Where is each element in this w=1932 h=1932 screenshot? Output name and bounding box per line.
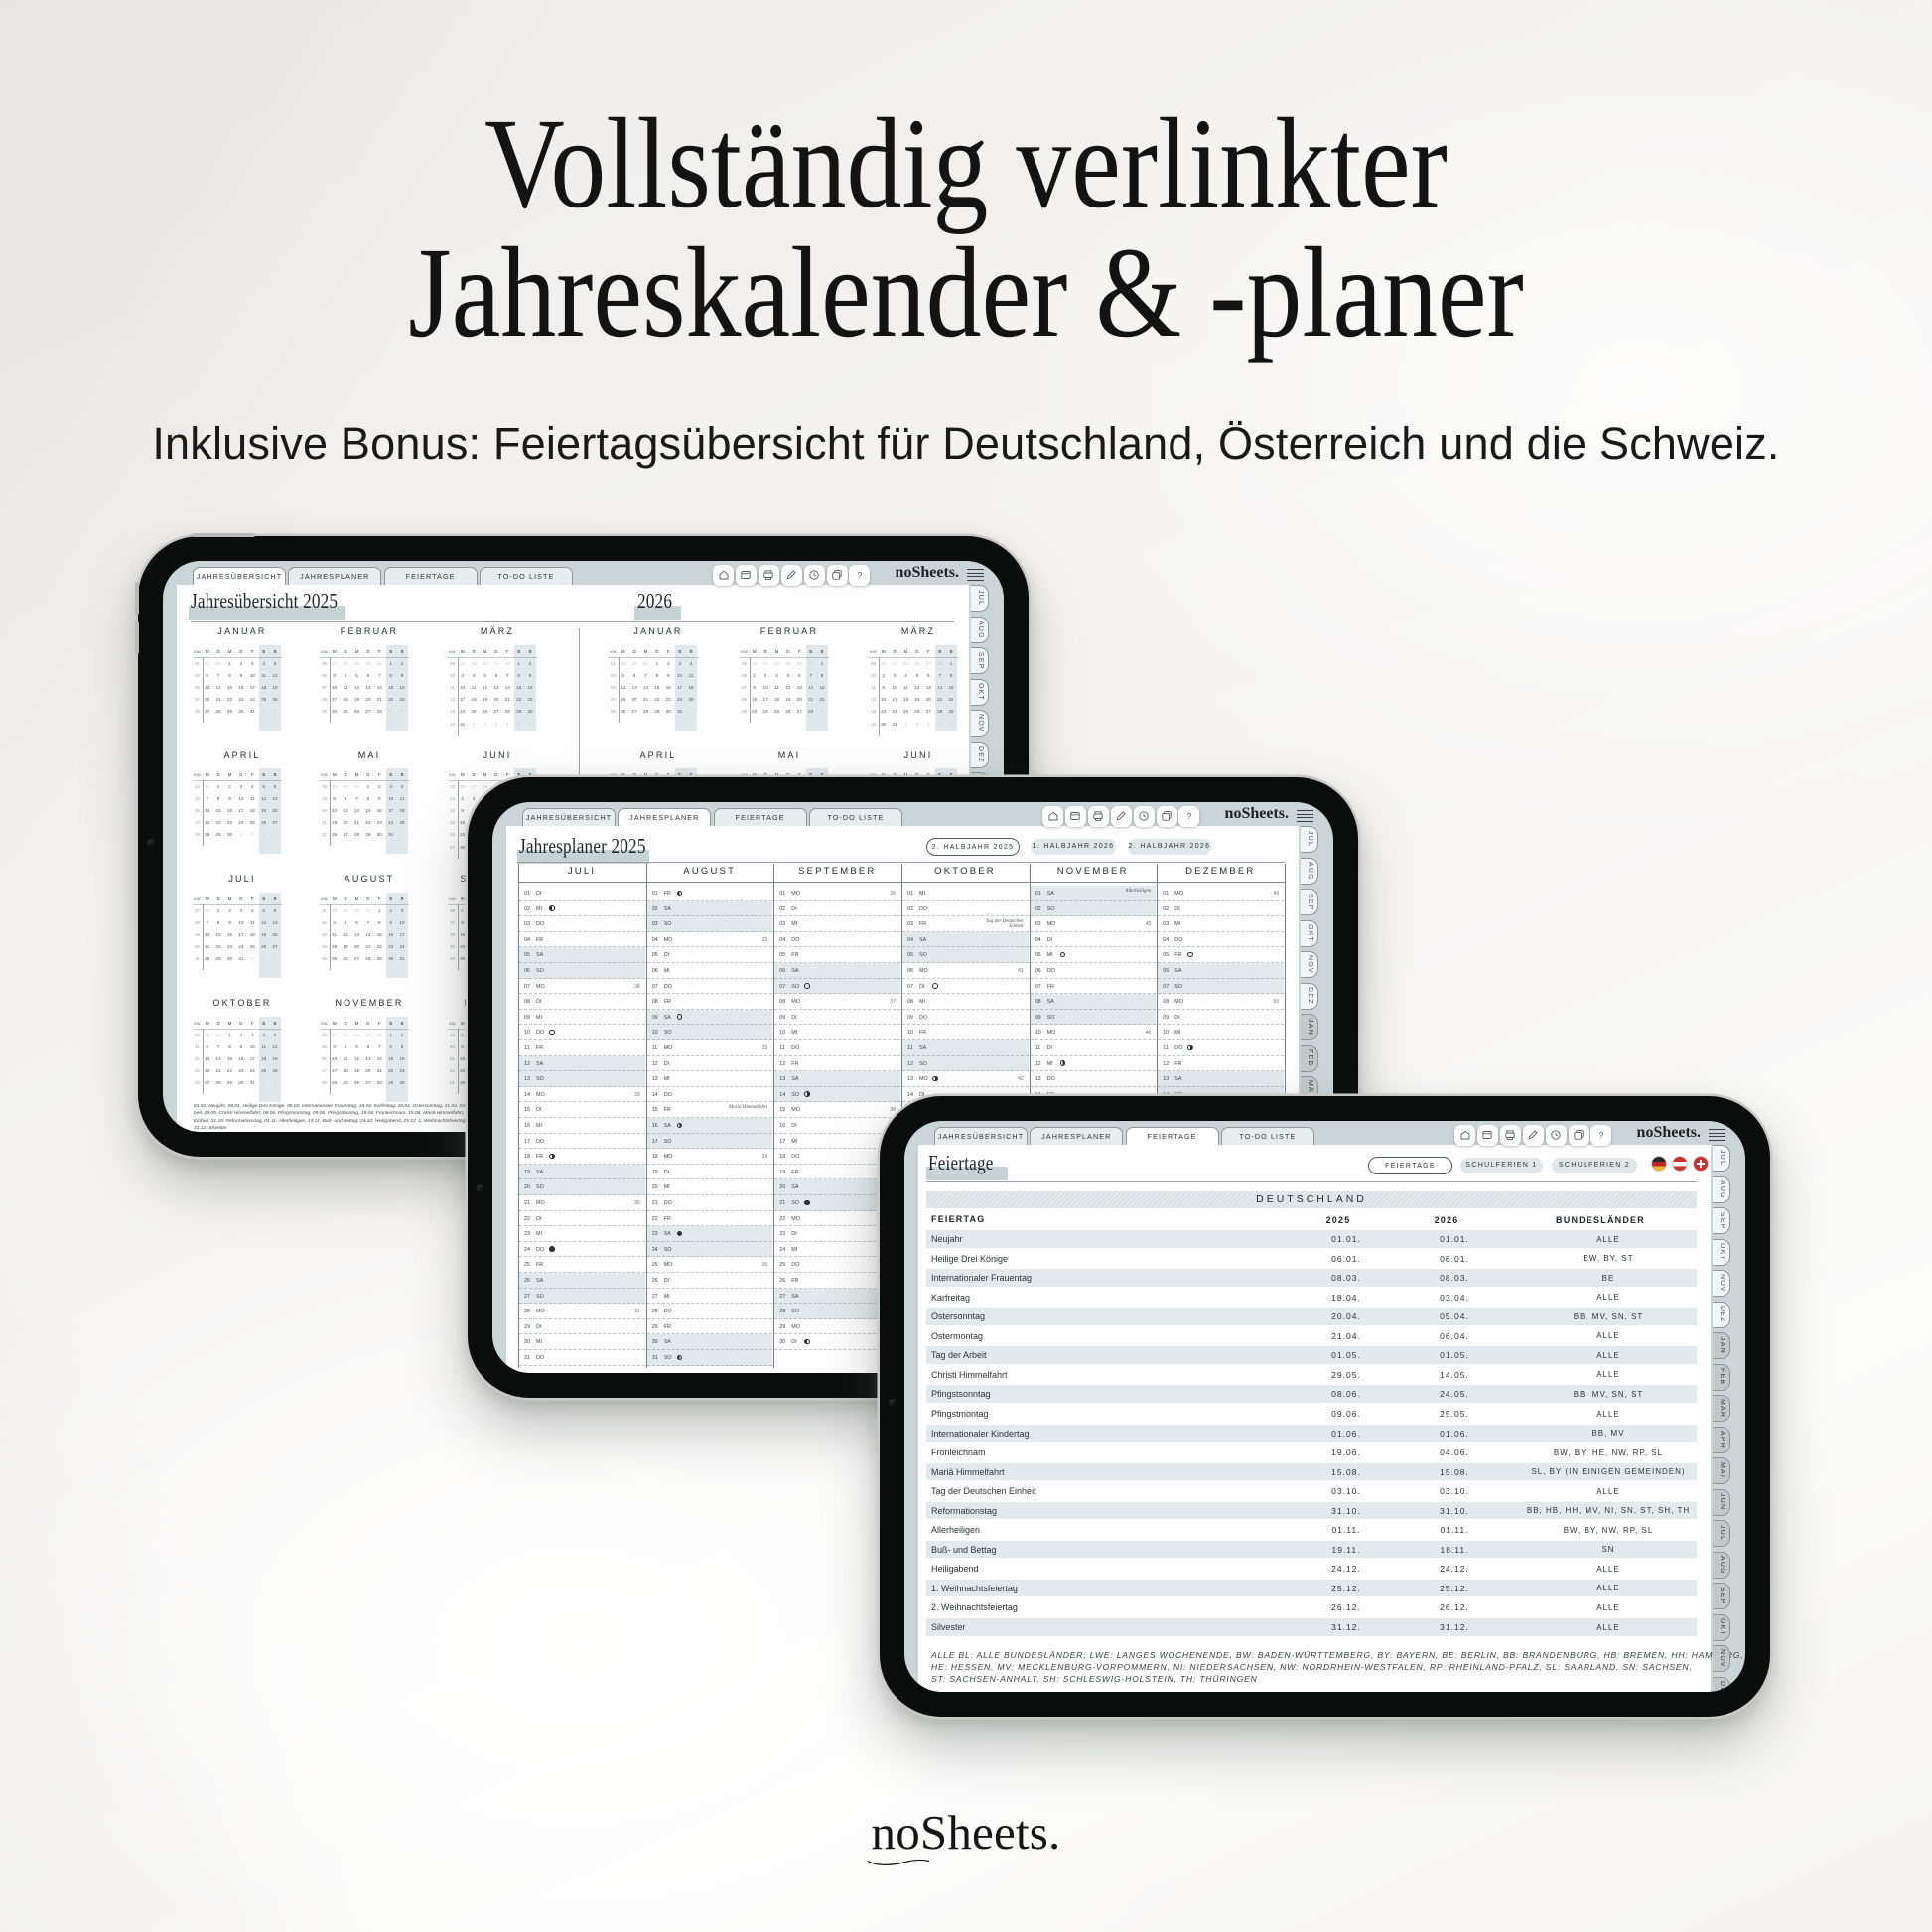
svg-text:?: ? [1187,811,1192,821]
svg-text:?: ? [1599,1130,1604,1140]
svg-text:?: ? [858,570,863,580]
